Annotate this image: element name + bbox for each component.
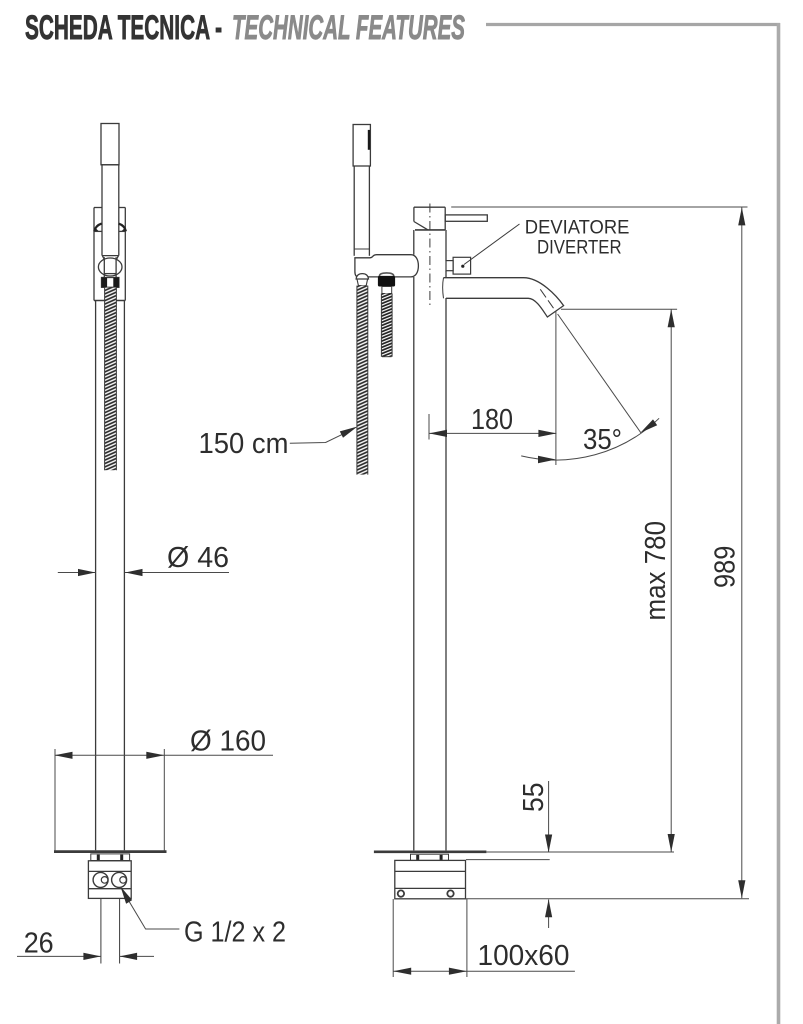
svg-text:150 cm: 150 cm <box>199 428 289 460</box>
svg-text:SCHEDA TECNICA -: SCHEDA TECNICA - <box>25 9 222 47</box>
svg-text:TECHNICAL FEATURES: TECHNICAL FEATURES <box>232 9 465 47</box>
svg-text:G 1/2 x 2: G 1/2 x 2 <box>184 917 286 949</box>
svg-text:max 780: max 780 <box>640 521 672 621</box>
svg-text:100x60: 100x60 <box>478 940 570 972</box>
svg-text:26: 26 <box>24 928 54 960</box>
svg-text:Ø 160: Ø 160 <box>190 726 266 758</box>
svg-text:35°: 35° <box>583 424 622 456</box>
svg-text:55: 55 <box>518 783 550 813</box>
svg-text:Ø 46: Ø 46 <box>167 542 229 574</box>
svg-text:989: 989 <box>710 546 742 588</box>
svg-text:DEVIATORE: DEVIATORE <box>525 218 630 239</box>
svg-text:DIVERTER: DIVERTER <box>537 238 622 259</box>
svg-text:180: 180 <box>471 404 513 436</box>
